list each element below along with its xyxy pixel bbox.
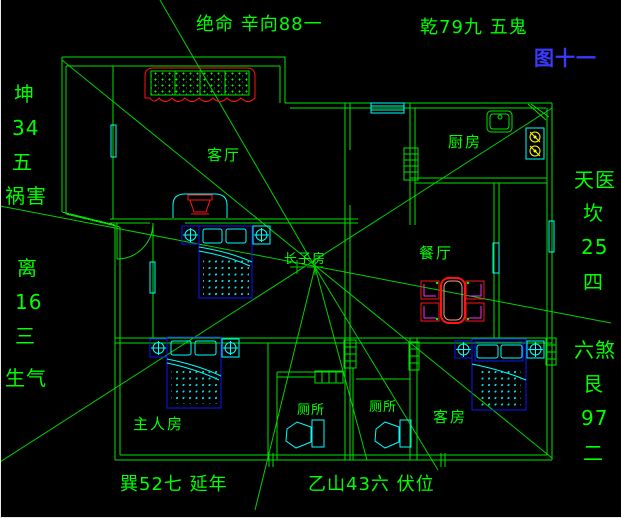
room-label-eldest-son: 长子房 [284,253,326,266]
label-er: 二 [583,443,604,463]
bed-guest [455,339,544,410]
room-label-toilet-left: 厕所 [297,404,325,417]
bed-eldest-son [182,226,270,298]
room-label-living-room: 客厅 [207,148,241,163]
label-huohai: 祸害 [5,186,47,206]
toilet-fixture-left [286,420,324,448]
windows [111,103,554,293]
room-label-toilet-right: 厕所 [369,401,397,414]
label-liusha: 六煞 [574,340,616,360]
label-si: 四 [583,272,604,292]
toilet-fixture-right [375,420,411,448]
label-li: 离 [17,258,38,278]
annotation-bottom-right: 乙山43六 伏位 [308,476,435,494]
label-shengqi: 生气 [5,368,47,388]
label-kun: 坤 [14,84,35,104]
dining-set [421,278,484,323]
label-tianyi: 天医 [574,170,616,190]
room-label-guest-room: 客房 [433,410,467,425]
kitchen-sink [487,111,512,132]
annotation-bottom-left: 巽52七 延年 [120,476,228,494]
label-16: 16 [15,292,42,312]
annotation-top-left: 绝命 辛向88一 [196,16,323,34]
label-gen: 艮 [583,374,604,394]
room-label-kitchen: 厨房 [448,135,482,150]
annotation-top-right: 乾79九 五鬼 [420,19,528,37]
room-label-dining-room: 餐厅 [419,246,453,261]
label-wu: 五 [12,152,33,172]
label-25: 25 [581,237,608,257]
label-34: 34 [12,118,39,138]
sofa [145,68,255,102]
room-label-master-bedroom: 主人房 [133,417,184,432]
label-kan: 坎 [583,203,604,223]
label-san: 三 [15,326,36,346]
kitchen-stove [526,128,544,159]
floorplan-canvas: 绝命 辛向88一 乾79九 五鬼 图十一 坤 34 五 祸害 离 16 三 生气… [0,0,621,518]
label-97: 97 [581,408,608,428]
bed-master [150,337,239,408]
tv-cabinet [173,194,227,218]
figure-number: 图十一 [534,48,597,68]
canvas-left-edge [0,0,1,518]
